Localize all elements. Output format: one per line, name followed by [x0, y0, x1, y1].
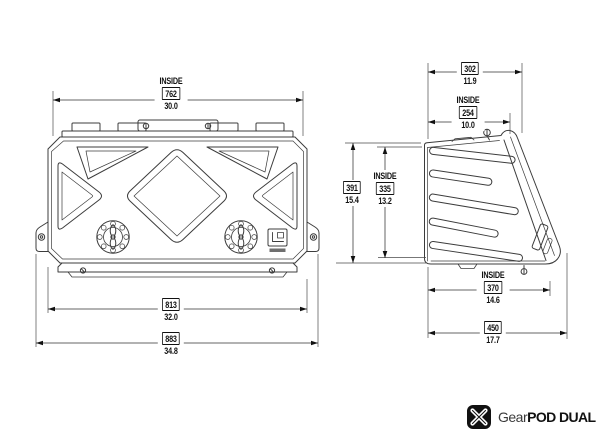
dim-prefix: INSIDE [159, 76, 182, 86]
technical-drawing-page: INSIDE 762 30.0 302 11.9 INSIDE 254 10.0… [0, 0, 600, 448]
dim-front-overall-width: 883 34.8 [158, 331, 184, 357]
brand-name-regular: Gear [498, 409, 527, 425]
dim-side-overall-depth: 450 17.7 [480, 320, 506, 346]
mount-tab-right [307, 222, 319, 252]
mount-tab-left [36, 222, 48, 252]
gearpod-dimension-drawing [0, 0, 600, 448]
dim-mm-value: 335 [376, 182, 394, 195]
dim-inch-value: 34.8 [164, 346, 177, 356]
top-bracket [138, 120, 218, 131]
dim-side-top-depth: 302 11.9 [457, 61, 483, 87]
bottom-band [58, 263, 297, 277]
front-view-drawing [36, 120, 319, 277]
side-lid [504, 137, 555, 261]
latch-right-icon [225, 221, 257, 253]
top-rail [62, 123, 293, 137]
dim-mm-value: 813 [162, 298, 180, 311]
screw-icon [521, 266, 527, 275]
brand-name: GearPOD DUAL [498, 409, 595, 425]
brand-x-icon [467, 405, 491, 429]
brand-lockup: GearPOD DUAL [467, 405, 595, 429]
side-ribs [429, 147, 523, 262]
brace-pattern [58, 147, 297, 242]
dim-inch-value: 13.2 [378, 196, 391, 206]
dim-inch-value: 14.6 [486, 295, 499, 305]
dim-inch-value: 30.0 [164, 101, 177, 111]
dim-mm-value: 391 [343, 181, 361, 194]
dim-inch-value: 15.4 [345, 195, 358, 205]
dim-side-overall-height: 391 15.4 [339, 180, 365, 206]
dim-mm-value: 762 [162, 87, 180, 100]
dim-prefix: INSIDE [456, 95, 479, 105]
dim-side-inside-height: INSIDE 335 13.2 [369, 170, 402, 207]
dim-inch-value: 32.0 [164, 312, 177, 322]
dim-mm-value: 883 [162, 332, 180, 345]
dim-mm-value: 450 [484, 321, 502, 334]
latch-left-icon [97, 221, 129, 253]
dim-side-inside-depth: INSIDE 370 14.6 [477, 269, 510, 306]
badge-logo-icon [268, 229, 287, 252]
dim-mm-value: 370 [484, 281, 502, 294]
screw-icon [484, 129, 491, 140]
dim-mm-value: 254 [459, 106, 477, 119]
brand-name-bold: POD DUAL [527, 409, 595, 425]
dim-prefix: INSIDE [481, 270, 504, 280]
dim-inch-value: 11.9 [464, 76, 477, 86]
dim-front-body-width: 813 32.0 [158, 297, 184, 323]
dim-side-inside-top-depth: INSIDE 254 10.0 [452, 94, 485, 131]
side-view-drawing [425, 129, 561, 274]
dim-inch-value: 17.7 [486, 335, 499, 345]
dim-front-inside-width: INSIDE 762 30.0 [155, 75, 188, 112]
dim-inch-value: 10.0 [461, 120, 474, 130]
dim-prefix: INSIDE [373, 171, 396, 181]
dim-mm-value: 302 [461, 62, 479, 75]
